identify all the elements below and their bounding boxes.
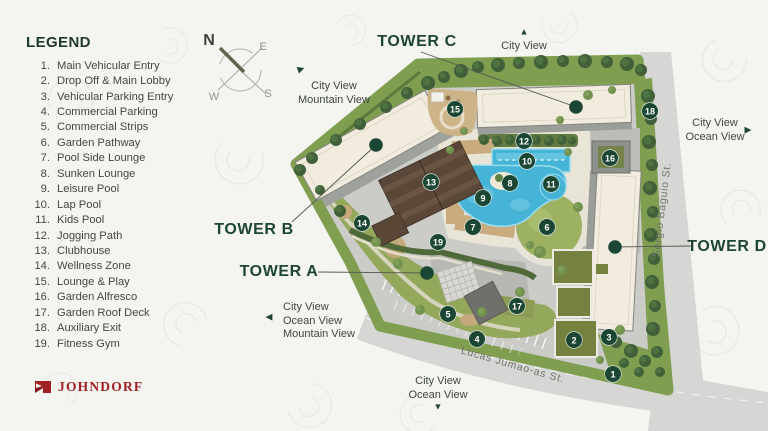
legend-item-label: Vehicular Parking Entry	[57, 91, 173, 103]
map-marker-13: 13	[423, 174, 440, 191]
tower-dot	[369, 138, 383, 152]
site-development-plan: Lucas Jumao-as St.Sergio Baguio St. 1234…	[0, 0, 768, 431]
legend-title: LEGEND	[26, 34, 173, 51]
legend-item: 13.Clubhouse	[26, 243, 173, 258]
legend-item-number: 4.	[26, 106, 50, 118]
view-label-line: City View	[298, 80, 370, 94]
marker-number: 15	[450, 104, 460, 114]
tower-dot	[608, 240, 622, 254]
legend-item-number: 12.	[26, 230, 50, 242]
tower-label: TOWER D	[687, 238, 766, 256]
view-south: City ViewOcean View	[408, 375, 467, 402]
legend-item: 18.Auxiliary Exit	[26, 320, 173, 335]
view-east: City ViewOcean View	[685, 117, 744, 144]
view-northwest: City ViewMountain View	[298, 80, 370, 107]
legend-item-label: Garden Alfresco	[57, 291, 137, 303]
marker-number: 5	[445, 309, 450, 319]
view-label-line: Ocean View	[408, 389, 467, 403]
view-direction-down-icon: ▼	[434, 403, 443, 412]
legend-item-label: Sunken Lounge	[57, 168, 135, 180]
legend-list: 1.Main Vehicular Entry2.Drop Off & Main …	[26, 58, 173, 351]
view-west: City ViewOcean ViewMountain View	[283, 301, 355, 342]
map-marker-7: 7	[465, 219, 482, 236]
map-marker-6: 6	[539, 219, 556, 236]
legend-item-label: Kids Pool	[57, 214, 104, 226]
legend-item-label: Main Vehicular Entry	[57, 60, 160, 72]
legend-item-label: Commercial Strips	[57, 121, 148, 133]
legend-item-number: 14.	[26, 260, 50, 272]
legend-item-label: Auxiliary Exit	[57, 322, 121, 334]
legend-item: 4.Commercial Parking	[26, 104, 173, 119]
view-label-line: City View	[408, 375, 467, 389]
legend-item-label: Garden Roof Deck	[57, 307, 150, 319]
legend-item-number: 19.	[26, 338, 50, 350]
view-label-line: Mountain View	[298, 94, 370, 108]
marker-number: 1	[610, 369, 615, 379]
marker-number: 9	[480, 193, 485, 203]
legend-item-label: Drop Off & Main Lobby	[57, 75, 171, 87]
legend-item-number: 3.	[26, 91, 50, 103]
legend-item: 7.Pool Side Lounge	[26, 151, 173, 166]
map-marker-5: 5	[440, 306, 457, 323]
legend-item-number: 16.	[26, 291, 50, 303]
brand-name: JOHNDORF	[58, 379, 143, 395]
legend-item-number: 2.	[26, 75, 50, 87]
legend-item: 8.Sunken Lounge	[26, 166, 173, 181]
map-marker-1: 1	[605, 366, 622, 383]
view-label-line: City View	[283, 301, 355, 315]
legend-item: 11.Kids Pool	[26, 212, 173, 227]
marker-number: 11	[546, 179, 556, 189]
compass-rose: N E W S	[190, 22, 290, 117]
map-marker-2: 2	[566, 332, 583, 349]
brand-icon	[34, 380, 52, 395]
marker-number: 4	[474, 334, 479, 344]
legend-panel: LEGEND 1.Main Vehicular Entry2.Drop Off …	[26, 34, 173, 351]
marker-number: 3	[606, 332, 611, 342]
legend-item-label: Clubhouse	[57, 245, 111, 257]
compass-e: E	[259, 41, 266, 53]
tower-dot	[569, 100, 583, 114]
legend-item-label: Lounge & Play	[57, 276, 130, 288]
map-marker-18: 18	[642, 103, 659, 120]
compass-w: W	[209, 91, 220, 103]
map-marker-12: 12	[516, 133, 533, 150]
map-marker-11: 11	[543, 176, 560, 193]
map-marker-3: 3	[601, 329, 618, 346]
legend-item: 14.Wellness Zone	[26, 259, 173, 274]
legend-item: 2.Drop Off & Main Lobby	[26, 73, 173, 88]
legend-item: 1.Main Vehicular Entry	[26, 58, 173, 73]
legend-item: 17.Garden Roof Deck	[26, 305, 173, 320]
marker-number: 7	[470, 222, 475, 232]
map-marker-19: 19	[430, 234, 447, 251]
legend-item-number: 5.	[26, 121, 50, 133]
marker-number: 2	[571, 335, 576, 345]
map-marker-4: 4	[469, 331, 486, 348]
marker-number: 13	[426, 177, 436, 187]
legend-item: 3.Vehicular Parking Entry	[26, 89, 173, 104]
legend-item: 6.Garden Pathway	[26, 135, 173, 150]
legend-item-label: Fitness Gym	[57, 338, 120, 350]
map-marker-17: 17	[509, 298, 526, 315]
legend-item-label: Garden Pathway	[57, 137, 140, 149]
view-label-line: City View	[685, 117, 744, 131]
legend-item-number: 10.	[26, 199, 50, 211]
legend-item-number: 6.	[26, 137, 50, 149]
marker-number: 12	[519, 136, 529, 146]
marker-number: 17	[512, 301, 522, 311]
marker-number: 16	[605, 153, 615, 163]
view-label-line: Mountain View	[283, 328, 355, 342]
tower-label: TOWER C	[377, 33, 456, 51]
legend-item-number: 7.	[26, 152, 50, 164]
view-north: City View	[501, 40, 547, 54]
map-marker-15: 15	[447, 101, 464, 118]
legend-item-label: Jogging Path	[57, 230, 122, 242]
view-label-line: Ocean View	[685, 131, 744, 145]
tower-dot	[420, 266, 434, 280]
legend-item-label: Wellness Zone	[57, 260, 131, 272]
marker-number: 18	[645, 106, 655, 116]
legend-item: 19.Fitness Gym	[26, 336, 173, 351]
view-label-line: City View	[501, 40, 547, 54]
legend-item-number: 17.	[26, 307, 50, 319]
marker-number: 10	[522, 156, 532, 166]
compass-n: N	[203, 32, 215, 49]
legend-item-label: Lap Pool	[57, 199, 101, 211]
marker-number: 19	[433, 237, 443, 247]
legend-item-label: Pool Side Lounge	[57, 152, 145, 164]
legend-item-number: 11.	[26, 214, 50, 226]
legend-item: 15.Lounge & Play	[26, 274, 173, 289]
legend-item-number: 1.	[26, 60, 50, 72]
map-marker-9: 9	[475, 190, 492, 207]
legend-item-number: 13.	[26, 245, 50, 257]
legend-item-label: Commercial Parking	[57, 106, 158, 118]
marker-number: 14	[357, 218, 367, 228]
legend-item: 16.Garden Alfresco	[26, 290, 173, 305]
view-direction-left-icon: ◀	[266, 313, 273, 322]
map-marker-14: 14	[354, 215, 371, 232]
legend-item-number: 8.	[26, 168, 50, 180]
view-direction-right-icon: ▶	[745, 126, 752, 135]
legend-item: 9.Leisure Pool	[26, 182, 173, 197]
compass-s: S	[264, 88, 271, 100]
legend-item: 5.Commercial Strips	[26, 120, 173, 135]
brand-logo: JOHNDORF	[34, 379, 143, 395]
tower-label: TOWER B	[214, 221, 293, 239]
marker-number: 8	[507, 178, 512, 188]
view-direction-up-icon: ▲	[520, 28, 529, 37]
map-marker-8: 8	[502, 175, 519, 192]
view-label-line: Ocean View	[283, 315, 355, 329]
marker-number: 6	[544, 222, 549, 232]
compass-needle-icon	[220, 48, 244, 72]
map-marker-16: 16	[602, 150, 619, 167]
map-marker-10: 10	[519, 153, 536, 170]
legend-item: 10.Lap Pool	[26, 197, 173, 212]
legend-item: 12.Jogging Path	[26, 228, 173, 243]
tower-label: TOWER A	[240, 263, 319, 281]
legend-item-number: 18.	[26, 322, 50, 334]
legend-item-label: Leisure Pool	[57, 183, 119, 195]
legend-item-number: 9.	[26, 183, 50, 195]
legend-item-number: 15.	[26, 276, 50, 288]
